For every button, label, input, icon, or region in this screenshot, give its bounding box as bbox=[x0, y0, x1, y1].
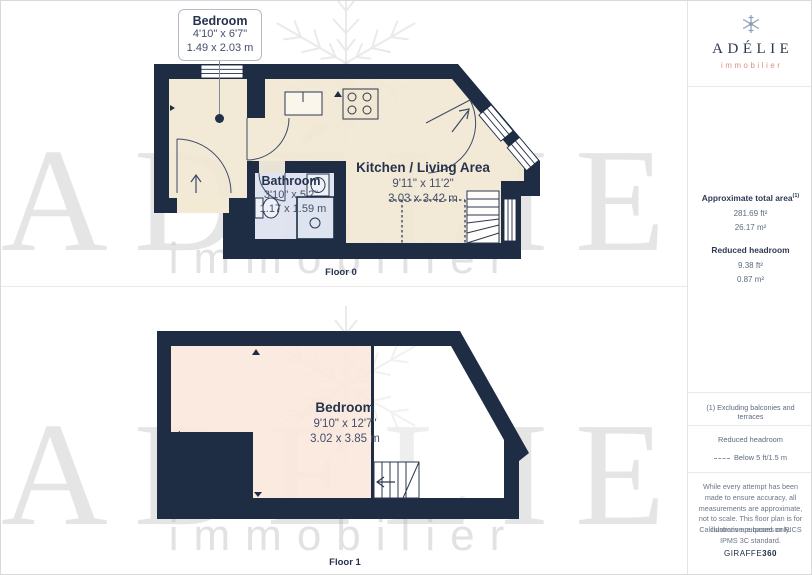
sidebar-divider bbox=[688, 86, 812, 87]
bathroom-label: Bathroom bbox=[261, 174, 320, 188]
reduced-headroom-ft: 9.38 ft² bbox=[688, 261, 812, 270]
total-area-footnote-marker: (1) bbox=[793, 193, 800, 199]
floor0-stairs bbox=[467, 191, 499, 243]
total-area-ft: 281.69 ft² bbox=[688, 209, 812, 218]
total-area-label-text: Approximate total area bbox=[702, 193, 793, 203]
brand-suffix: 360 bbox=[762, 549, 777, 558]
kitchen-sink-icon bbox=[285, 92, 322, 115]
dashed-line-sample bbox=[714, 458, 730, 459]
sidebar-divider bbox=[688, 472, 812, 473]
callout-anchor-dot bbox=[215, 114, 224, 123]
callout-leader-line bbox=[219, 61, 220, 118]
legend-item-text: Below 5 ft/1.5 m bbox=[734, 453, 787, 462]
kitchen-label: Kitchen / Living Area bbox=[356, 160, 490, 175]
floor0-caption: Floor 0 bbox=[325, 267, 357, 278]
legend-title: Reduced headroom bbox=[688, 435, 812, 444]
floor1-bedroom-label: Bedroom bbox=[315, 400, 374, 415]
floor1-bedroom-imperial-dims: 9'10" x 12'7" bbox=[313, 418, 376, 430]
reduced-headroom-m: 0.87 m² bbox=[688, 275, 812, 284]
brand-name: GIRAFFE bbox=[724, 549, 762, 558]
floor0-window-right bbox=[504, 199, 516, 241]
total-area-m: 26.17 m² bbox=[688, 223, 812, 232]
logo-snowflake-icon bbox=[741, 13, 761, 35]
floorplan-page: ADÉLIE immobilier ADÉLIE immobilier bbox=[0, 0, 812, 575]
sidebar-divider bbox=[688, 425, 812, 426]
logo-tagline: immobilier bbox=[688, 61, 812, 70]
floor0-window-top bbox=[201, 65, 243, 78]
callout-metric-dims: 1.49 x 2.03 m bbox=[179, 42, 261, 55]
standard-text: Calculations are based on RICS IPMS 3C s… bbox=[688, 525, 812, 547]
bathroom-imperial-dims: 3'10" x 5'2" bbox=[264, 189, 318, 201]
floor1-caption: Floor 1 bbox=[329, 557, 361, 568]
bedroom-callout: Bedroom 4'10" x 6'7" 1.49 x 2.03 m bbox=[178, 9, 262, 61]
floor1-bedroom-metric-dims: 3.02 x 3.85 m bbox=[310, 433, 380, 445]
floorplan-drawing bbox=[1, 1, 687, 574]
area-footnote: (1) Excluding balconies and terraces bbox=[688, 403, 812, 421]
stove-icon bbox=[343, 89, 378, 119]
floor0-entry-opening bbox=[177, 198, 229, 213]
callout-room-name: Bedroom bbox=[179, 14, 261, 28]
callout-imperial-dims: 4'10" x 6'7" bbox=[179, 28, 261, 41]
total-area-label: Approximate total area(1) bbox=[688, 193, 812, 203]
floorplan-canvas: ADÉLIE immobilier ADÉLIE immobilier bbox=[1, 1, 687, 574]
floor-section-divider bbox=[1, 286, 687, 287]
legend-row: Below 5 ft/1.5 m bbox=[688, 453, 812, 462]
info-sidebar: ADÉLIE immobilier Approximate total area… bbox=[687, 1, 812, 574]
kitchen-imperial-dims: 9'11" x 11'2" bbox=[392, 178, 453, 190]
reduced-headroom-label: Reduced headroom bbox=[688, 245, 812, 255]
bathroom-metric-dims: 1.17 x 1.59 m bbox=[260, 203, 327, 215]
sidebar-divider bbox=[688, 392, 812, 393]
kitchen-metric-dims: 3.03 x 3.42 m bbox=[388, 193, 458, 205]
giraffe360-brand: GIRAFFE360 bbox=[688, 549, 812, 558]
floor0-bathroom-opening bbox=[259, 161, 285, 173]
logo-wordmark: ADÉLIE bbox=[688, 41, 812, 58]
